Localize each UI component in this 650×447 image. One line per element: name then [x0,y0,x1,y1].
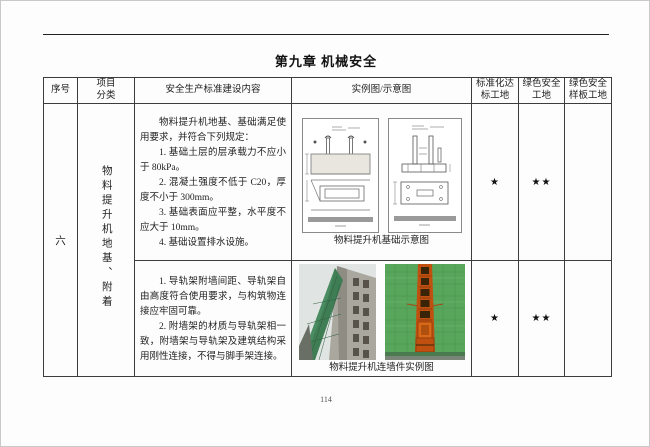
content-paragraph: 1. 导轨架附墙间距、导轨架自由高度符合使用要求，与构筑物连接应牢固可靠。 [140,275,286,320]
content-cell-wall-ties: 1. 导轨架附墙间距、导轨架自由高度符合使用要求，与构筑物连接应牢固可靠。 2.… [135,261,292,377]
rating-green-site: ★★ [519,261,565,377]
hoist-mast-photo [385,264,465,360]
header-serial: 序号 [44,78,78,104]
header-example: 实例图/示意图 [292,78,472,104]
category-cell: 物料提升机地基、附着 [78,104,135,377]
content-paragraph: 1. 基础土层的层承载力不应小于 80kPa。 [140,146,286,176]
content-paragraph: 2. 混凝土强度不低于 C20，厚度不小于 300mm。 [140,176,286,206]
rating-standard-site: ★ [472,104,519,261]
figure-caption: 物料提升机基础示意图 [334,235,429,247]
rating-model-site [565,261,612,377]
page-number: 114 [1,395,650,404]
header-standard-site: 标准化达标工地 [472,78,519,104]
table-row: 六 物料提升机地基、附着 物料提升机地基、基础满足使用要求，并符合下列规定： 1… [44,104,612,261]
foundation-section-diagram [302,118,379,233]
serial-number-cell: 六 [44,104,78,377]
figure-caption: 物料提升机连墙件实例图 [329,362,434,374]
content-paragraph: 4. 基础设置排水设施。 [140,236,286,251]
rating-standard-site: ★ [472,261,519,377]
foundation-plan-diagram [388,118,462,233]
chapter-title: 第九章 机械安全 [1,51,650,70]
content-paragraph: 物料提升机地基、基础满足使用要求，并符合下列规定： [140,116,286,146]
safety-standards-table: 序号 项目 分类 安全生产标准建设内容 实例图/示意图 标准化达标工地 绿色安全… [43,77,612,377]
rating-model-site [565,104,612,261]
rating-green-site: ★★ [519,104,565,261]
header-category: 项目 分类 [78,78,135,104]
figure-cell-wall-ties: 物料提升机连墙件实例图 [292,261,472,377]
building-netting-photo [299,264,376,360]
document-page: { "page": { "chapter_title": "第九章 机械安全",… [0,0,650,447]
header-content: 安全生产标准建设内容 [135,78,292,104]
content-paragraph: 3. 基础表面应平整，水平度不应大于 10mm。 [140,206,286,236]
header-green-site: 绿色安全工地 [519,78,565,104]
figure-cell-foundation: 物料提升机基础示意图 [292,104,472,261]
category-label: 物料提升机地基、附着 [100,165,112,310]
content-cell-foundation: 物料提升机地基、基础满足使用要求，并符合下列规定： 1. 基础土层的层承载力不应… [135,104,292,261]
content-paragraph: 2. 附墙架的材质与导轨架相一致，附墙架与导轨架及建筑结构采用刚性连接，不得与脚… [140,320,286,365]
header-model-site: 绿色安全样板工地 [565,78,612,104]
top-rule [43,34,609,35]
